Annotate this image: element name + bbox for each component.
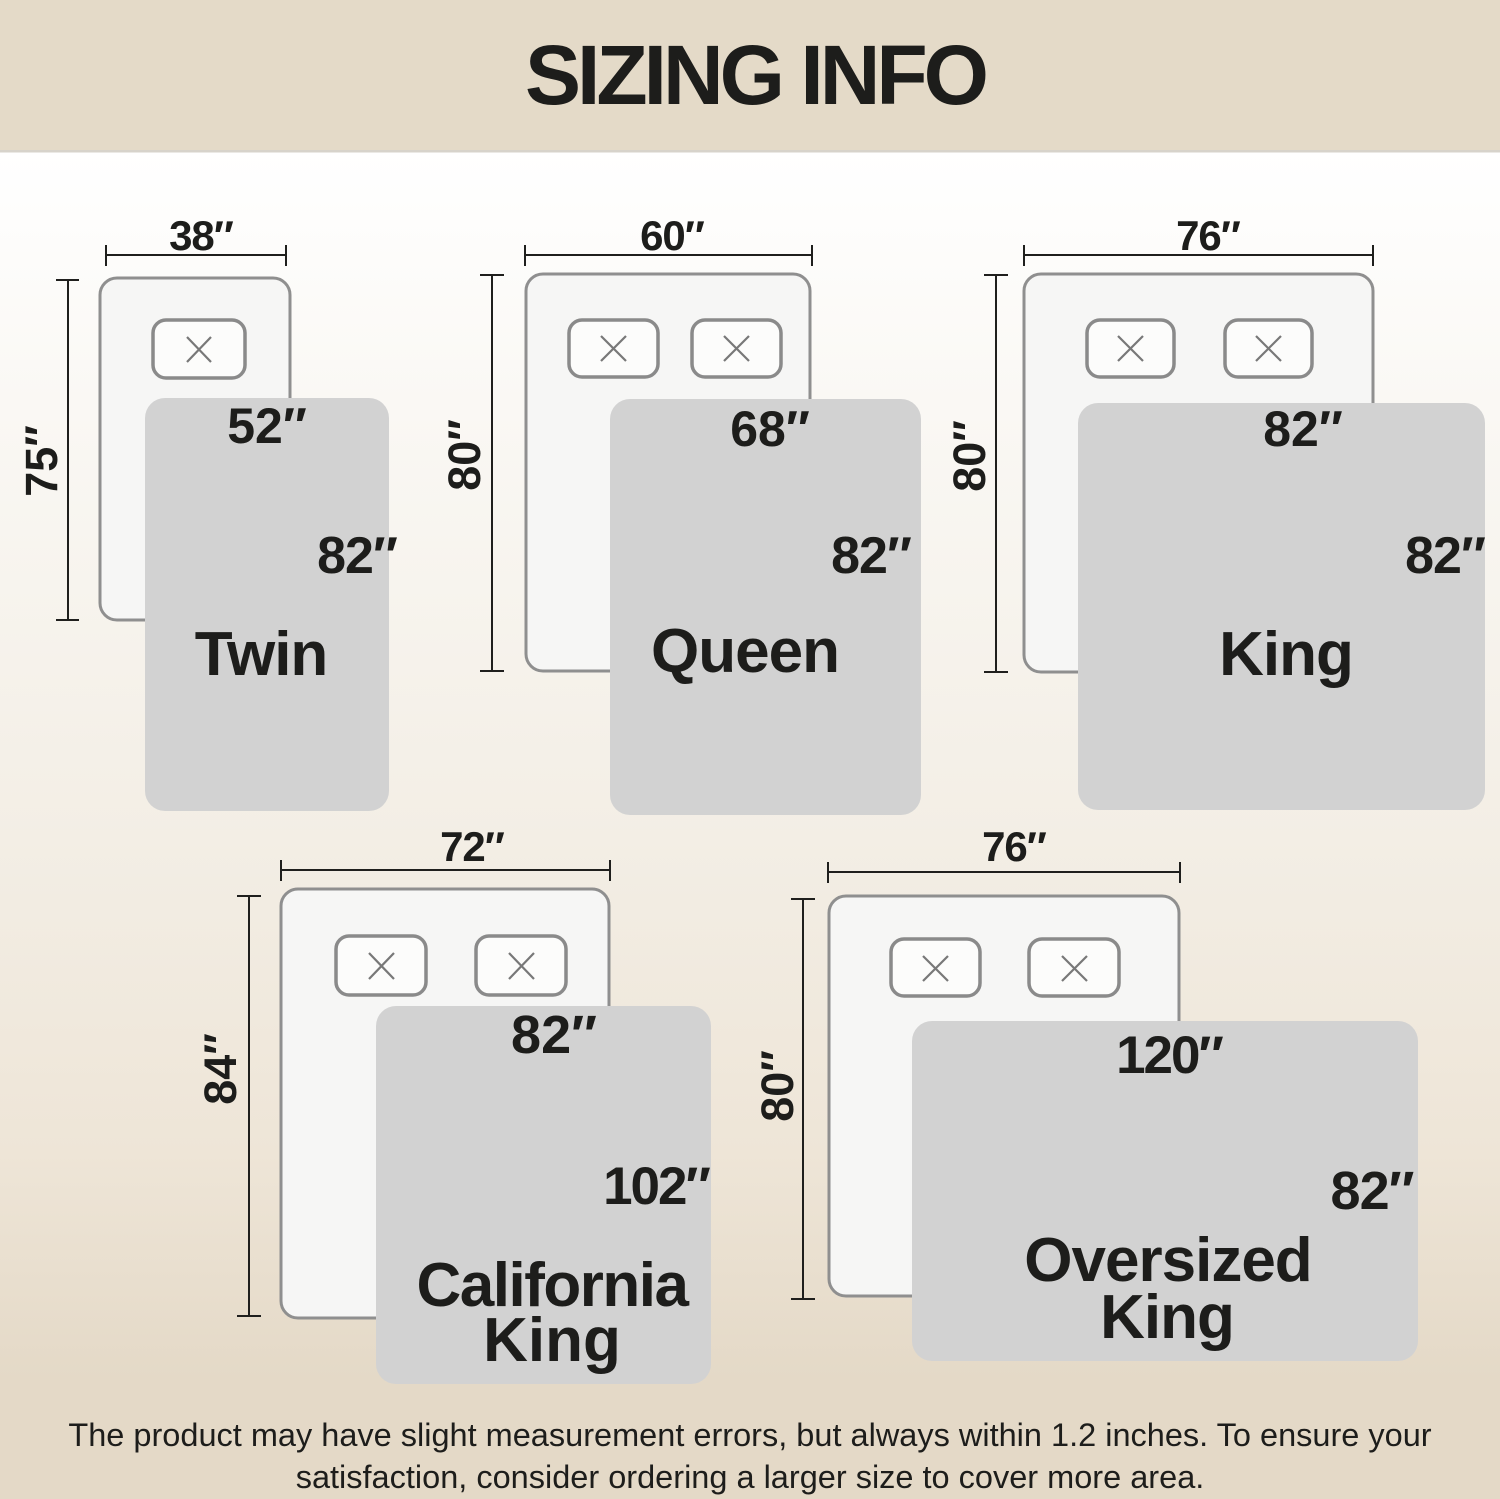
- svg-text:80″: 80″: [752, 1050, 803, 1122]
- svg-text:82″: 82″: [1263, 401, 1343, 457]
- svg-text:82″: 82″: [1331, 1161, 1414, 1221]
- svg-text:82″: 82″: [317, 527, 397, 585]
- svg-text:SIZING INFO: SIZING INFO: [525, 28, 986, 122]
- svg-text:120″: 120″: [1116, 1026, 1223, 1085]
- svg-text:King: King: [483, 1306, 621, 1375]
- svg-text:King: King: [1100, 1283, 1234, 1352]
- svg-text:The product may have slight me: The product may have slight measurement …: [68, 1417, 1431, 1453]
- svg-text:82″: 82″: [511, 1005, 597, 1065]
- svg-text:80″: 80″: [439, 419, 490, 491]
- svg-text:76″: 76″: [1176, 212, 1241, 259]
- svg-text:76″: 76″: [982, 823, 1047, 870]
- svg-text:84″: 84″: [195, 1033, 246, 1105]
- svg-text:satisfaction, consider orderin: satisfaction, consider ordering a larger…: [296, 1459, 1205, 1495]
- svg-text:60″: 60″: [640, 212, 705, 259]
- svg-text:82″: 82″: [1405, 527, 1485, 585]
- svg-text:King: King: [1219, 620, 1353, 689]
- svg-text:52″: 52″: [227, 398, 307, 454]
- svg-text:80″: 80″: [944, 420, 995, 492]
- svg-text:68″: 68″: [730, 401, 810, 457]
- svg-text:75″: 75″: [16, 425, 67, 497]
- svg-text:38″: 38″: [169, 212, 234, 259]
- svg-text:82″: 82″: [831, 527, 911, 585]
- svg-text:102″: 102″: [603, 1157, 710, 1216]
- svg-text:Queen: Queen: [651, 617, 839, 686]
- svg-text:Twin: Twin: [195, 620, 328, 689]
- svg-text:72″: 72″: [440, 823, 505, 870]
